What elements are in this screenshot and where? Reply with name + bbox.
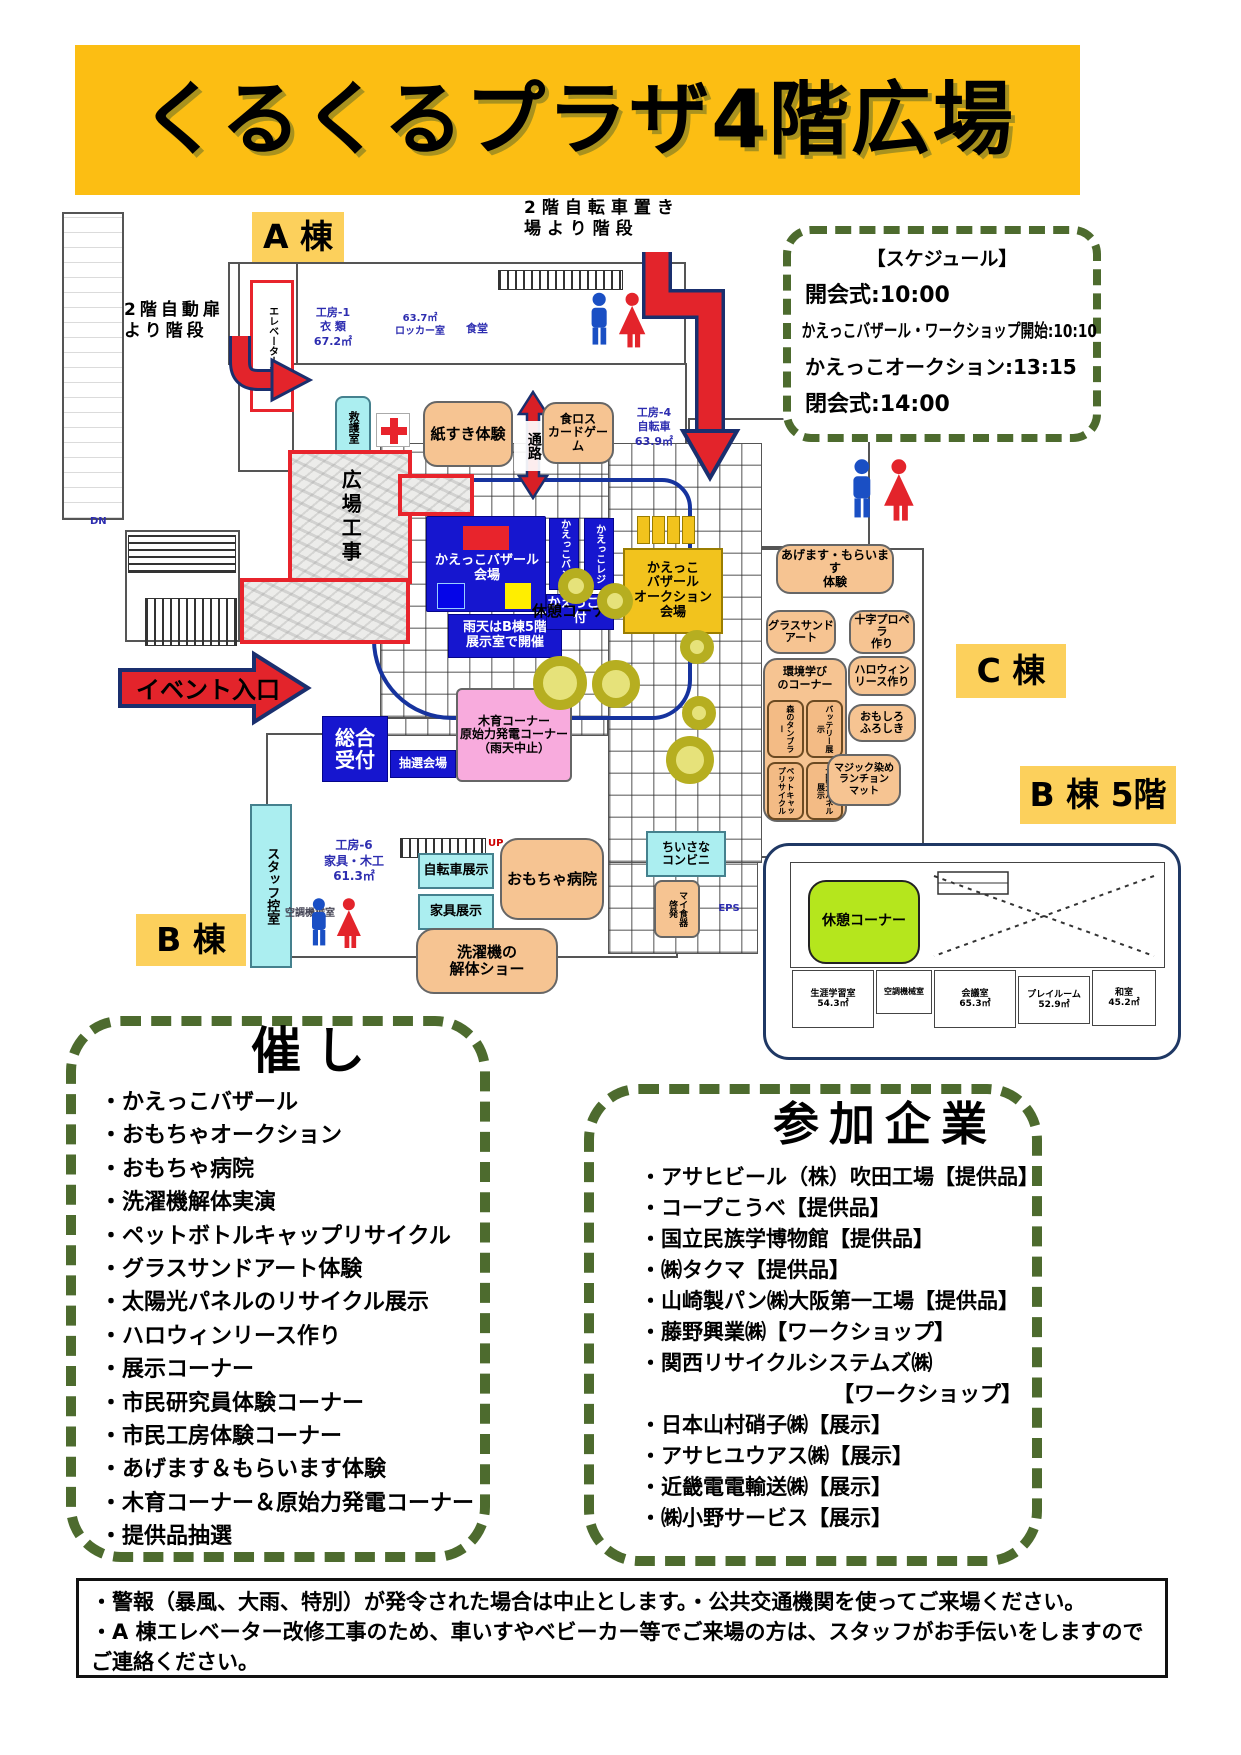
b5-room-study: 生涯学習室 54.3㎡ — [792, 970, 874, 1028]
event-item: ・ハロウィンリース作り — [100, 1320, 480, 1353]
company-item: ・㈱タクマ【提供品】 — [640, 1255, 1040, 1286]
map-area-toy-hospital: おもちゃ病院 — [500, 838, 604, 920]
schedule-line-1: 開会式:10:00 — [791, 277, 1093, 309]
wing-label-b5-text: B 棟 5階 — [1029, 777, 1166, 814]
map-area-magic-mat: マジック染め ランチョン マット — [827, 754, 901, 806]
map-area-staff-room: スタッフ控室 — [250, 804, 292, 968]
map-area-first-aid: 救護室 — [335, 396, 371, 458]
table-donut-6 — [682, 696, 716, 730]
schedule-line-3: かえっこオークション:13:15 — [791, 351, 1093, 380]
map-area-battery: バッテリー展示 — [806, 700, 843, 758]
company-item: ・山崎製パン㈱大阪第一工場【提供品】 — [640, 1286, 1040, 1317]
events-heading: 催し — [160, 1020, 470, 1082]
title-banner: くるくるプラザ4階広場 — [75, 45, 1080, 195]
room-locker: 63.7㎡ ロッカー室 — [388, 312, 452, 338]
map-area-main-reception: 総合 受付 — [322, 716, 388, 782]
map-area-tumbler: 森のタンブラー — [767, 700, 804, 758]
room-dn: DN — [90, 516, 107, 527]
stairs-hatch-1 — [128, 535, 236, 573]
wing-label-b5: B 棟 5階 — [1020, 766, 1176, 824]
company-item: ・藤野興業㈱【ワークショップ】 — [640, 1317, 1040, 1348]
b5-room-washitsu: 和室 45.2㎡ — [1092, 970, 1156, 1026]
event-item: ・市民研究員体験コーナー — [100, 1387, 480, 1420]
notice-line-1: ・警報（暴風、大雨、特別）が発令された場合は中止とします。・公共交通機関を使って… — [91, 1587, 1153, 1617]
map-area-lottery: 抽選会場 — [390, 750, 456, 778]
companies-heading: 参加企業 — [700, 1096, 1070, 1154]
left-tower-outline — [62, 212, 124, 520]
wing-label-b: B 棟 — [136, 914, 246, 966]
b5-room-kucho: 空調機械室 — [876, 970, 932, 1014]
company-item: ・関西リサイクルシステムズ㈱ — [640, 1348, 1040, 1379]
gold-tab-1 — [637, 516, 650, 544]
room-kobo1: 工房-1 衣 類 67.2㎡ — [300, 306, 366, 349]
wing-label-a-text: A 棟 — [263, 219, 333, 256]
map-area-give-get: あげます・もらいます 体験 — [776, 544, 894, 594]
event-item: ・展示コーナー — [100, 1353, 480, 1386]
table-donut-4 — [592, 660, 640, 708]
toilet-icon-b-wing — [306, 896, 366, 952]
event-item: ・おもちゃオークション — [100, 1119, 480, 1152]
company-item: ・アサヒビール（株）吹田工場【提供品】 — [640, 1162, 1040, 1193]
b5-room-play: プレイルーム 52.9㎡ — [1018, 976, 1090, 1024]
map-area-mini-store: ちいさな コンビニ — [646, 831, 726, 877]
table-donut-3 — [533, 656, 587, 710]
companies-heading-text: 参加企業 — [773, 1099, 997, 1151]
bazaar-yellow-rect — [505, 583, 531, 609]
schedule-line-4: 閉会式:14:00 — [791, 386, 1093, 418]
room-kobo6: 工房-6 家具・木工 61.3㎡ — [306, 838, 402, 885]
gold-tab-2 — [652, 516, 665, 544]
table-donut-1 — [558, 568, 594, 604]
map-area-rest-b5: 休憩コーナー — [808, 880, 920, 964]
event-item: ・グラスサンドアート体験 — [100, 1253, 480, 1286]
plaza-construction-right — [398, 474, 474, 516]
map-area-glass-sand: グラスサンド アート — [766, 610, 836, 654]
companies-list: ・アサヒビール（株）吹田工場【提供品】 ・コープこうべ【提供品】 ・国立民族学博… — [640, 1162, 1040, 1534]
toilet-icon-a-wing — [585, 290, 651, 352]
map-area-propeller: 十字プロペラ 作り — [849, 610, 915, 654]
map-area-plaza-construction: 広場工事 — [288, 450, 412, 584]
room-kobo4: 工房-4 自転車 63.9㎡ — [616, 406, 692, 449]
eco-corner-label: 環境学び のコーナー — [765, 665, 845, 691]
plaza-construction-label: 広場工事 — [339, 469, 361, 565]
events-list: ・かえっこバザール ・おもちゃオークション ・おもちゃ病院 ・洗濯機解体実演 ・… — [100, 1086, 480, 1554]
map-area-kaekko-bazaar: かえっこバザール 会場 — [426, 516, 546, 612]
stairs-hatch-2 — [145, 598, 237, 646]
table-donut-7 — [666, 736, 714, 784]
event-item: ・木育コーナー＆原始力発電コーナー — [100, 1487, 480, 1520]
map-area-furoshiki: おもしろ ふろしき — [848, 704, 916, 742]
red-cross-icon — [376, 413, 410, 447]
toilet-icon-c-wing — [846, 456, 920, 526]
plaza-construction-lower — [240, 578, 410, 644]
event-entrance-label: イベント入口 — [136, 670, 296, 705]
bazaar-blue-rect — [437, 583, 465, 609]
map-area-washer-show: 洗濯機の 解体ショー — [416, 928, 558, 994]
event-item: ・提供品抽選 — [100, 1520, 480, 1553]
gold-tab-4 — [682, 516, 695, 544]
company-item: ・コープこうべ【提供品】 — [640, 1193, 1040, 1224]
event-item: ・太陽光パネルのリサイクル展示 — [100, 1286, 480, 1319]
room-eps: EPS — [712, 902, 746, 915]
schedule-box: 【スケジュール】 開会式:10:00 かえっこバザール・ワークショップ開始:10… — [783, 226, 1101, 442]
company-item: ・近畿電電輸送㈱【展示】 — [640, 1472, 1040, 1503]
bazaar-label: かえっこバザール 会場 — [427, 551, 547, 587]
event-item: ・ペットボトルキャップリサイクル — [100, 1220, 480, 1253]
schedule-heading: 【スケジュール】 — [791, 244, 1093, 271]
event-item: ・洗濯機解体実演 — [100, 1186, 480, 1219]
company-item: ・国立民族学博物館【提供品】 — [640, 1224, 1040, 1255]
notice-box: ・警報（暴風、大雨、特別）が発令された場合は中止とします。・公共交通機関を使って… — [76, 1578, 1168, 1678]
company-item: ・㈱小野サービス【展示】 — [640, 1503, 1040, 1534]
company-item: ・アサヒユウアス㈱【展示】 — [640, 1441, 1040, 1472]
map-area-auction: かえっこ バザール オークション 会場 — [623, 548, 723, 634]
wing-label-c-text: C 棟 — [977, 653, 1046, 690]
event-item: ・市民工房体験コーナー — [100, 1420, 480, 1453]
map-area-bike-show: 自転車展示 — [418, 853, 494, 889]
arrow-down-icon — [635, 246, 763, 486]
company-item: ・日本山村硝子㈱【展示】 — [640, 1410, 1040, 1441]
wing-label-a: A 棟 — [252, 212, 344, 262]
gold-tab-3 — [667, 516, 680, 544]
table-donut-5 — [680, 630, 714, 664]
map-area-paper-craft: 紙すき体験 — [423, 401, 513, 467]
event-item: ・おもちゃ病院 — [100, 1153, 480, 1186]
map-area-petcap: ペットキャップリサイクル — [767, 762, 804, 820]
notice-line-2: ・A 棟エレベーター改修工事のため、車いすやベビーカー等でご来場の方は、スタッフ… — [91, 1617, 1153, 1677]
stairs-bike-note: 2階自転車置き 場より階段 — [524, 198, 774, 241]
company-item-continuation: 【ワークショップ】 — [640, 1379, 1040, 1410]
wing-label-b-text: B 棟 — [156, 922, 226, 959]
schedule-line-2: かえっこバザール・ワークショップ開始:10:10 — [791, 317, 1021, 343]
b5-room-meeting: 会議室 65.3㎡ — [934, 970, 1016, 1028]
wing-label-c: C 棟 — [956, 644, 1066, 698]
map-area-halloween: ハロウィン リース作り — [848, 656, 916, 696]
map-area-furniture-show: 家具展示 — [418, 894, 494, 930]
map-area-food-loss: 食ロス カードゲーム — [542, 402, 614, 464]
page-title: くるくるプラザ4階広場 — [140, 75, 1014, 165]
table-donut-2 — [597, 583, 633, 619]
balcony-hatch — [498, 270, 623, 290]
room-up: UP — [488, 838, 503, 849]
map-area-my-dishes: マイ食器 啓発 — [654, 880, 700, 938]
bazaar-red-rect — [463, 526, 509, 550]
event-item: ・かえっこバザール — [100, 1086, 480, 1119]
room-dining: 食堂 — [455, 322, 499, 336]
b5-cross-hatch — [930, 868, 1158, 962]
event-item: ・あげます＆もらいます体験 — [100, 1453, 480, 1486]
events-heading-text: 催し — [251, 1023, 379, 1079]
